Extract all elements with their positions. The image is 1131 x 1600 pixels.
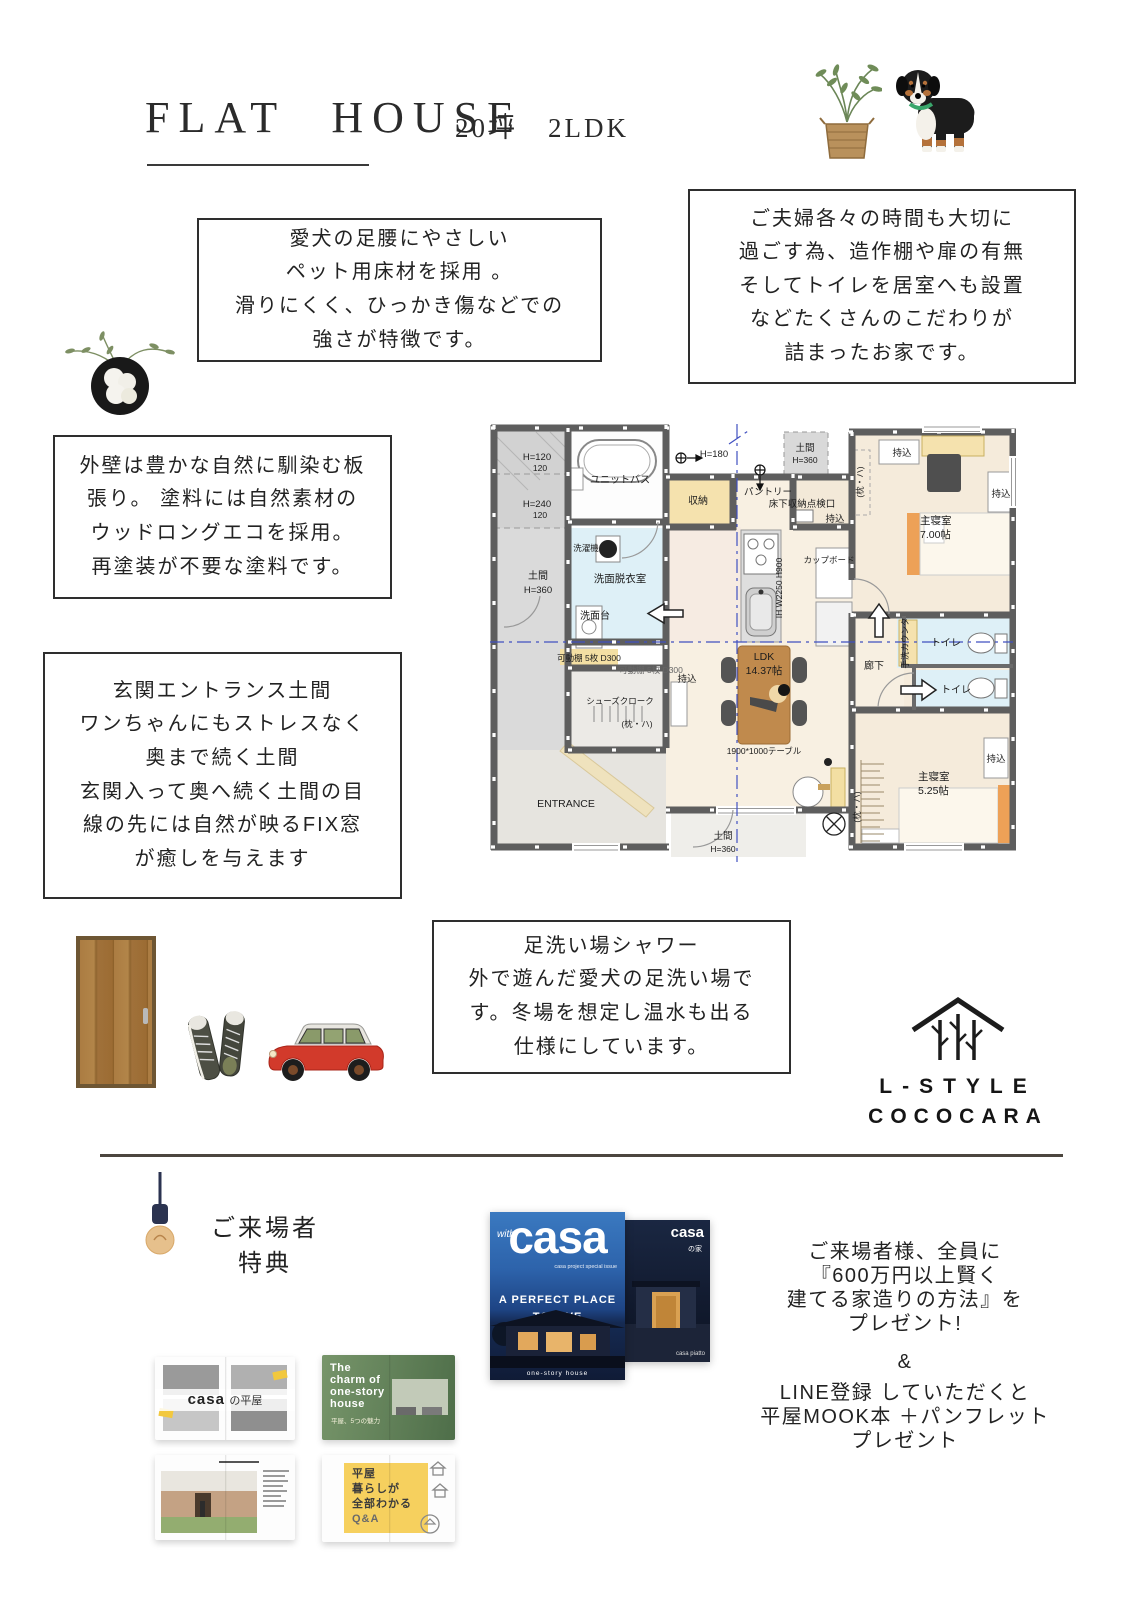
fp-label-h120: H=120 <box>523 452 551 463</box>
cover-back-brand: casa <box>671 1224 704 1241</box>
title-underline <box>147 164 369 166</box>
note-shower: 足洗い場シャワー 外で遊んだ愛犬の足洗い場で す。冬場を想定し温水も出る 仕様に… <box>432 920 791 1074</box>
door-image <box>76 936 156 1088</box>
toilet1 <box>968 633 994 653</box>
fp-label-ih: IH W2250 H900 <box>774 557 784 618</box>
fp-label-makura-b1: (枕・ハ) <box>855 466 865 497</box>
fp-label-mochikomi-b2: 持込 <box>986 753 1006 765</box>
fp-label-sentaku: 洗濯機 <box>573 543 599 553</box>
fp-label-unit-bath: ユニットバス <box>590 474 650 486</box>
fp-label-tearai: 手洗カウンタ <box>900 617 910 668</box>
cover-back-footer: casa piatto <box>676 1351 705 1357</box>
fp-label-doma-bottom: 土間 <box>713 830 732 842</box>
fp-label-mochikomi-b1b: 持込 <box>991 488 1011 500</box>
fp-label-shoes: シューズクローク <box>586 696 654 706</box>
washing-machine <box>599 540 617 558</box>
fp-label-doma-left-h: H=360 <box>524 585 552 596</box>
fp-label-bedroom1-size: 7.00帖 <box>920 528 951 541</box>
fp-label-toilet2: トイレ <box>941 685 971 696</box>
company-logo: L-STYLE COCOCARA <box>858 992 1058 1129</box>
door-handle <box>143 1008 148 1024</box>
fp-label-doma-top: 土間 <box>795 442 814 454</box>
logo-line2: COCOCARA <box>858 1105 1058 1129</box>
magazine-cover-front: with casa casa project special issue A P… <box>490 1212 625 1380</box>
cover-back-sub: の家 <box>688 1244 702 1254</box>
note-entrance-doma: 玄関エントランス土間 ワンちゃんにもストレスなく 奥まで続く土間 玄関入って奥へ… <box>43 652 402 899</box>
house-doodle-icon <box>431 1483 449 1498</box>
bowl-decor-image <box>62 330 178 418</box>
toilet2 <box>968 678 994 698</box>
fp-label-mochikomi-shoe: 持込 <box>677 673 697 685</box>
fp-label-rouka: 廊下 <box>864 659 884 672</box>
spread-tr-sub: 平屋、5つの魅力 <box>331 1415 380 1425</box>
lightbulb-icon <box>140 1172 180 1268</box>
section-divider <box>100 1154 1063 1157</box>
flyer-page: FLAT HOUSE 20坪 2LDK <box>0 0 1131 1600</box>
spread-tr-text: The charm of one-story house <box>330 1363 385 1411</box>
fp-label-doma-top-h: H=360 <box>792 455 818 465</box>
fp-label-bedroom1: 主寝室 <box>920 514 952 527</box>
fp-label-bedroom2: 主寝室 <box>918 770 950 783</box>
fp-label-mochikomi-pantry: 持込 <box>825 513 845 525</box>
promo-text: ご来場者様、全員に 『600万円以上賢く 建てる家造りの方法』を プレゼント! … <box>740 1240 1070 1453</box>
fp-label-table: 1900*1000テーブル <box>727 746 802 756</box>
cover-front-photo <box>490 1306 625 1368</box>
basket <box>826 124 868 158</box>
fp-label-entrance: ENTRANCE <box>537 798 595 810</box>
spread-tl-title: の平屋 <box>229 1395 262 1407</box>
note-pet-floor: 愛犬の足腰にやさしい ペット用床材を採用 。 滑りにくく、ひっかき傷などでの 強… <box>197 218 602 362</box>
spread-hiraya-qa: 平屋 暮らしが 全部わかる Q&A <box>322 1455 455 1542</box>
fp-label-120b: 120 <box>533 510 547 520</box>
fp-label-kadodana1: 可動棚 5枚 D300 <box>557 653 621 663</box>
fp-label-senmen-room: 洗面脱衣室 <box>594 572 647 585</box>
fp-label-bedroom2-size: 5.25帖 <box>918 784 949 797</box>
spread-house-photo <box>155 1455 295 1540</box>
fp-label-toilet1: トイレ <box>931 638 961 649</box>
fp-label-makura-shoe: (枕・ハ) <box>621 719 652 729</box>
fp-label-shuno: 収納 <box>688 494 708 507</box>
logo-line1: L-STYLE <box>858 1075 1058 1099</box>
note-exterior-wall: 外壁は豊かな自然に馴染む板 張り。 塗料には自然素材の ウッドロングエコを採用。… <box>53 435 392 599</box>
cover-front-brand: casa <box>490 1212 625 1264</box>
spread-br-text: 平屋 暮らしが 全部わかる Q&A <box>352 1467 412 1526</box>
fp-label-ldk: LDK <box>754 651 774 663</box>
fp-label-pantry: パントリー <box>744 487 792 498</box>
note-couple: ご夫婦各々の時間も大切に 過ごす為、造作棚や扉の有無 そしてトイレを居室へも設置… <box>688 189 1076 384</box>
fp-label-kadodana2: 可動棚 5枚 D300 <box>619 665 683 675</box>
fp-label-senmendai: 洗面台 <box>580 609 610 622</box>
page-subtitle: 20坪 2LDK <box>455 106 629 145</box>
fp-label-makura-b2: (枕・ハ) <box>852 791 862 822</box>
fp-label-doma-left: 土間 <box>528 569 548 582</box>
benefit-heading: ご来場者 特典 <box>195 1212 335 1282</box>
cover-back-photo <box>622 1266 710 1362</box>
fp-label-h240: H=240 <box>523 499 551 510</box>
fp-label-cupboard: カップボード <box>803 555 854 565</box>
fp-label-mochikomi-b1a: 持込 <box>892 447 912 459</box>
fp-label-yukashita: 床下収納点検口 <box>769 498 836 510</box>
fp-label-doma-bottom-h: H=360 <box>710 844 736 854</box>
logo-house-icon <box>908 992 1008 1064</box>
ampersand: & <box>740 1351 1070 1373</box>
magazine-cover-back: casa の家 casa piatto <box>622 1220 710 1362</box>
floor-plan: H=120 120 H=240 120 土間 H=360 ユニットバス H=18… <box>476 410 1016 872</box>
desk-chair <box>927 454 961 492</box>
car-image <box>263 1016 385 1082</box>
fp-label-h180: H=180 <box>700 449 728 460</box>
potted-plant-image <box>812 58 882 162</box>
fp-label-ldk-size: 14.37帖 <box>746 664 783 677</box>
spread-one-story-charm: The charm of one-story house 平屋、5つの魅力 <box>322 1355 455 1440</box>
sneakers-image <box>188 1008 250 1086</box>
dog-image <box>884 62 976 162</box>
spread-casa-hiraya: casa の平屋 <box>155 1357 295 1440</box>
fp-label-120: 120 <box>533 463 547 473</box>
cover-front-tagline: casa project special issue <box>554 1264 617 1270</box>
house-doodle-icon <box>429 1461 447 1476</box>
cover-front-footer: one-story house <box>490 1370 625 1377</box>
house-doodle-icon <box>419 1514 441 1534</box>
bed1-headboard <box>907 513 920 575</box>
spread-tl-brand: casa <box>188 1391 225 1408</box>
